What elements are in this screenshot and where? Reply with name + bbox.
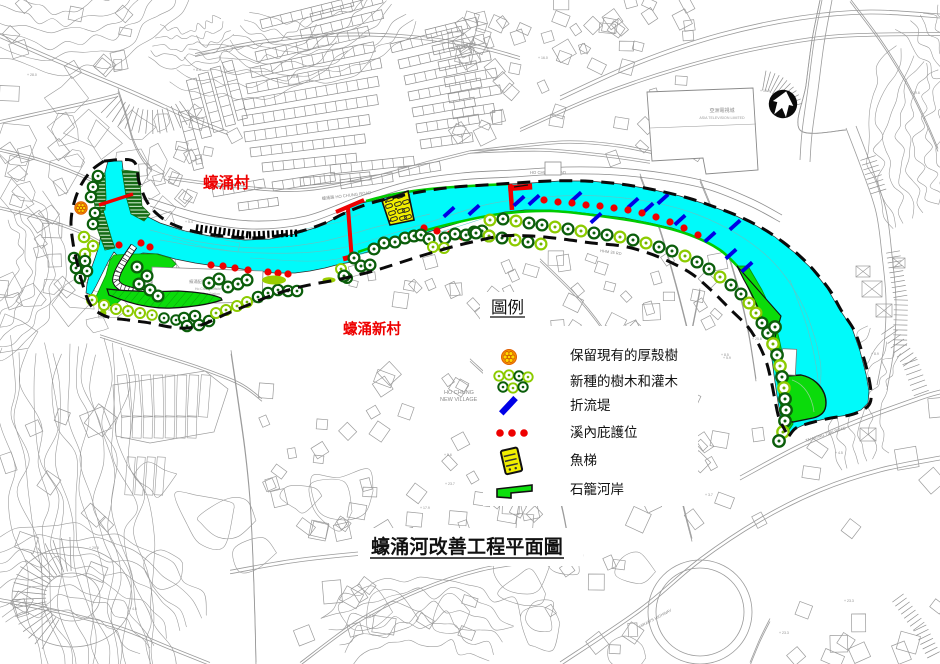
svg-text:+ 23.7: + 23.7 <box>445 482 455 486</box>
svg-text:+ 3.7: + 3.7 <box>705 493 713 497</box>
svg-text:ASIA TELEVISION LIMITED: ASIA TELEVISION LIMITED <box>699 116 745 120</box>
svg-text:蠔涌新村: 蠔涌新村 <box>343 320 401 338</box>
svg-text:HO CHUNG: HO CHUNG <box>444 390 474 396</box>
svg-text:新種的樹木和灌木: 新種的樹木和灌木 <box>570 374 678 389</box>
svg-text:+ 7.7: + 7.7 <box>46 620 54 624</box>
svg-text:折流堤: 折流堤 <box>570 398 611 413</box>
svg-text:+ 5.4: + 5.4 <box>185 220 193 224</box>
svg-text:+ 4.5: + 4.5 <box>129 607 137 611</box>
svg-text:+ 23.3: + 23.3 <box>844 599 854 603</box>
svg-text:+ 3.9: + 3.9 <box>366 614 374 618</box>
svg-text:+ 8.9: + 8.9 <box>871 352 879 356</box>
svg-text:+ 8.4: + 8.4 <box>193 68 201 72</box>
svg-text:+ 25.8: + 25.8 <box>288 75 298 79</box>
svg-text:蠔涌村: 蠔涌村 <box>203 173 250 192</box>
svg-text:+ 29.5: + 29.5 <box>89 546 99 550</box>
svg-text:石籠河岸: 石籠河岸 <box>570 482 624 497</box>
svg-text:+ 23.3: + 23.3 <box>779 631 789 635</box>
svg-text:保留現有的厚殼樹: 保留現有的厚殼樹 <box>570 348 678 363</box>
svg-text:+ 5.6: + 5.6 <box>444 453 452 457</box>
svg-text:+ 28.0: + 28.0 <box>27 73 37 77</box>
svg-text:+ 5.9: + 5.9 <box>723 356 731 360</box>
svg-text:+ 4.5: + 4.5 <box>835 451 843 455</box>
svg-text:+ 12.7: + 12.7 <box>466 42 476 46</box>
svg-text:蠔涌河改善工程平面圖: 蠔涌河改善工程平面圖 <box>371 535 563 558</box>
svg-text:亞洲電視城: 亞洲電視城 <box>709 107 734 114</box>
svg-text:+ 17.9: + 17.9 <box>420 506 430 510</box>
svg-text:溪內庇護位: 溪內庇護位 <box>570 425 638 440</box>
svg-text:魚梯: 魚梯 <box>570 453 597 468</box>
svg-text:+ 29.6: + 29.6 <box>910 91 920 95</box>
svg-text:+ 25.6: + 25.6 <box>752 337 762 341</box>
svg-text:+ 15.9: + 15.9 <box>760 89 770 93</box>
svg-text:+ 16.0: + 16.0 <box>538 56 548 60</box>
svg-text:圖例: 圖例 <box>491 298 524 317</box>
svg-text:NEW VILLAGE: NEW VILLAGE <box>440 397 478 403</box>
